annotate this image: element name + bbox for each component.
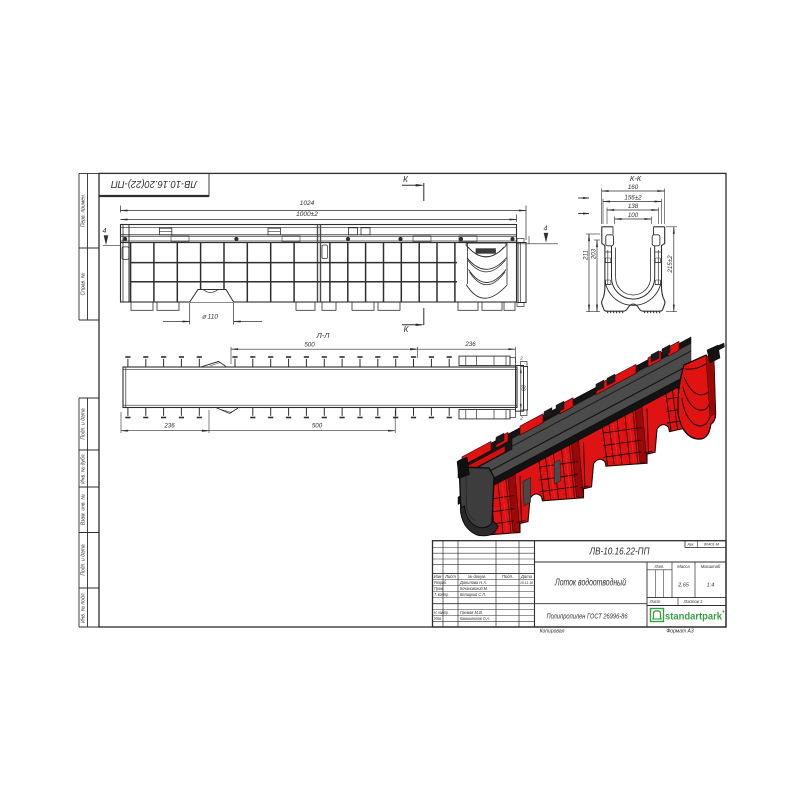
- svg-text:№ докум.: № докум.: [468, 574, 486, 579]
- svg-text:standartpark: standartpark: [665, 611, 722, 623]
- svg-text:Белицкий С.Л.: Белицкий С.Л.: [460, 592, 486, 597]
- svg-text:1000±2: 1000±2: [296, 211, 318, 218]
- svg-text:Кочановский М.: Кочановский М.: [460, 586, 488, 591]
- svg-text:⌀ 110: ⌀ 110: [202, 314, 218, 321]
- svg-text:156±2: 156±2: [624, 195, 642, 202]
- svg-text:Т. контр.: Т. контр.: [434, 592, 449, 597]
- svg-text:Разраб.: Разраб.: [434, 580, 447, 585]
- svg-text:Лит.: Лит.: [654, 564, 665, 569]
- svg-text:160: 160: [628, 184, 639, 191]
- svg-text:500: 500: [312, 423, 323, 430]
- svg-text:15.11.18: 15.11.18: [520, 581, 534, 585]
- svg-text:2: 2: [519, 416, 523, 421]
- svg-text:Гаевая М.В.: Гаевая М.В.: [460, 610, 483, 615]
- svg-text:100: 100: [628, 212, 639, 219]
- svg-text:2: 2: [519, 356, 523, 361]
- svg-text:Подп. и дата: Подп. и дата: [81, 408, 87, 440]
- svg-text:1024: 1024: [300, 200, 315, 207]
- svg-text:Перв. примен.: Перв. примен.: [81, 194, 87, 227]
- svg-text:1:4: 1:4: [707, 583, 715, 589]
- svg-text:80401-М: 80401-М: [704, 543, 720, 547]
- svg-text:Н. контр.: Н. контр.: [434, 610, 449, 615]
- svg-text:Взам. инв. №: Взам. инв. №: [81, 494, 87, 526]
- svg-text:ЛВ-10.16.22-ПП: ЛВ-10.16.22-ПП: [589, 547, 650, 558]
- svg-text:60: 60: [522, 384, 528, 391]
- svg-text:Дата: Дата: [520, 574, 533, 579]
- svg-text:Данилова Н.А.: Данилова Н.А.: [459, 580, 487, 585]
- svg-text:Копировал: Копировал: [540, 629, 565, 635]
- svg-text:Полипропилен ГОСТ 26996-86: Полипропилен ГОСТ 26996-86: [547, 612, 629, 621]
- svg-text:Подп. и дата: Подп. и дата: [81, 544, 87, 576]
- svg-text:Утв.: Утв.: [434, 616, 442, 621]
- svg-text:Масса: Масса: [677, 564, 690, 569]
- svg-text:Л-Л: Л-Л: [316, 331, 331, 340]
- svg-text:Листов 1: Листов 1: [683, 599, 703, 604]
- svg-text:Масштаб: Масштаб: [701, 564, 721, 569]
- svg-text:Справ. №: Справ. №: [81, 272, 87, 295]
- svg-text:4: 4: [544, 226, 548, 233]
- svg-text:Камышников О.А.: Камышников О.А.: [460, 616, 490, 621]
- svg-text:Инв. № подл.: Инв. № подл.: [81, 592, 87, 623]
- svg-text:215±2: 215±2: [667, 255, 674, 274]
- svg-text:Лист: Лист: [444, 574, 456, 579]
- svg-text:Лист: Лист: [649, 599, 661, 604]
- svg-text:Инв. № дубл.: Инв. № дубл.: [81, 453, 87, 484]
- svg-text:500: 500: [304, 342, 315, 349]
- svg-text:Арх.: Арх.: [686, 543, 694, 547]
- svg-text:236: 236: [464, 341, 476, 348]
- svg-text:2,65: 2,65: [677, 583, 690, 589]
- svg-text:4: 4: [103, 228, 107, 235]
- svg-text:203: 203: [591, 248, 598, 260]
- svg-text:ЛВ-10.16.20(22)-ПП: ЛВ-10.16.20(22)-ПП: [111, 178, 198, 190]
- svg-text:211: 211: [583, 250, 590, 261]
- svg-text:138: 138: [628, 203, 639, 210]
- svg-text:К-К: К-К: [630, 174, 642, 183]
- svg-text:Формат А3: Формат А3: [666, 629, 694, 635]
- svg-text:Лоток водоотводный: Лоток водоотводный: [554, 578, 626, 589]
- svg-text:236: 236: [163, 423, 175, 430]
- svg-text:Изм: Изм: [434, 574, 442, 579]
- svg-text:Подп.: Подп.: [502, 574, 513, 579]
- svg-text:Пров.: Пров.: [434, 586, 444, 591]
